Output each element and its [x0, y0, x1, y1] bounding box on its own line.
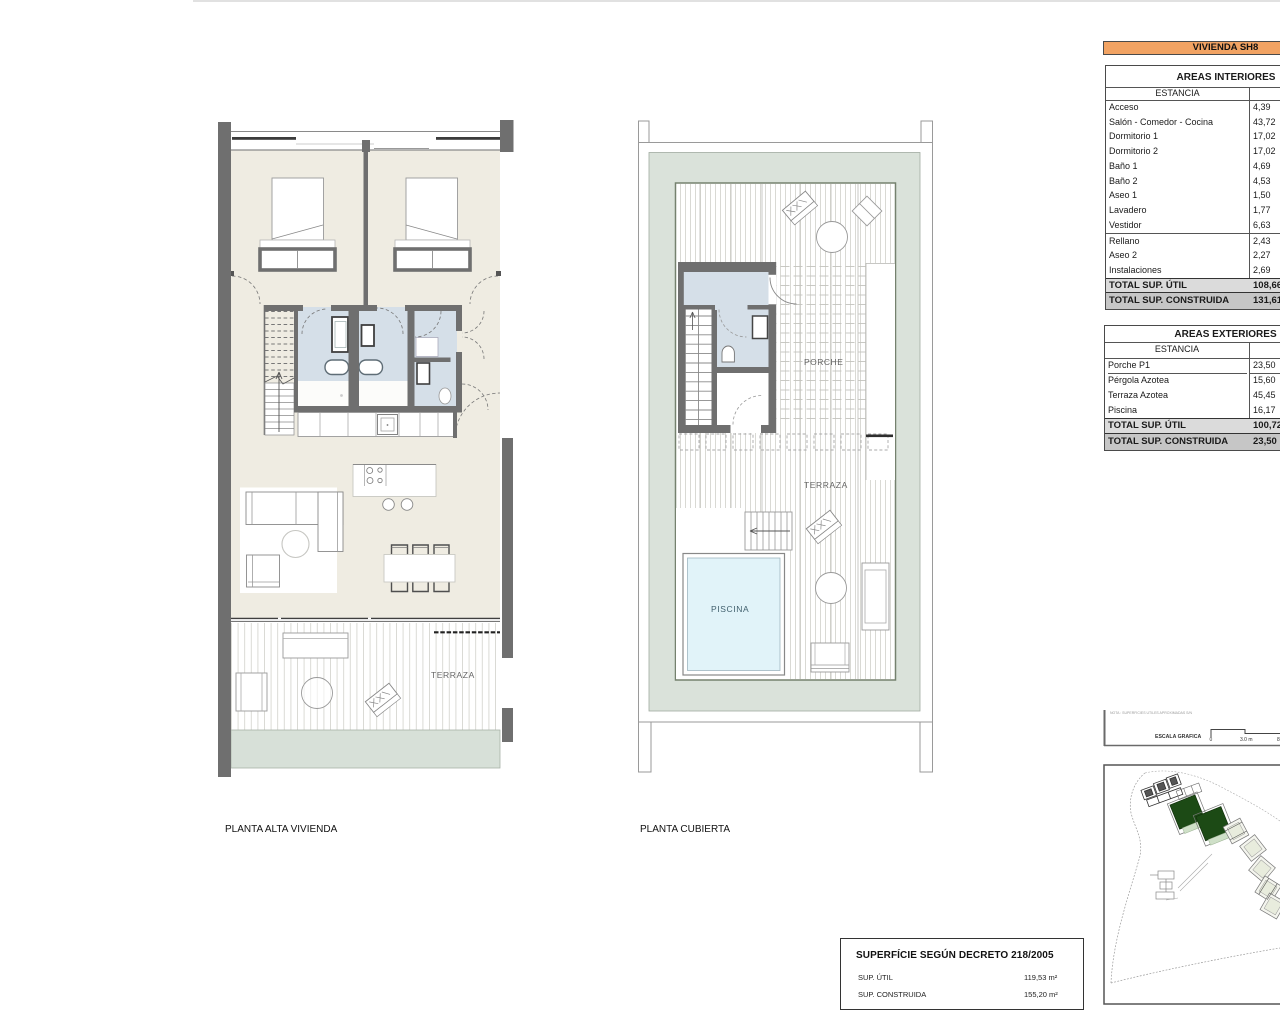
svg-text:PORCHE: PORCHE [804, 357, 843, 367]
svg-text:0: 0 [1210, 737, 1213, 743]
svg-text:3.0 m: 3.0 m [1240, 737, 1253, 743]
svg-text:PLANTA ALTA VIVIENDA: PLANTA ALTA VIVIENDA [225, 824, 338, 835]
svg-text:PISCINA: PISCINA [711, 604, 749, 614]
svg-text:PLANTA CUBIERTA: PLANTA CUBIERTA [640, 824, 730, 835]
svg-text:NOTA : SUPERFICIES UTILES APR: NOTA : SUPERFICIES UTILES APROXIMADAS S/… [1110, 711, 1192, 715]
svg-text:TERRAZA: TERRAZA [431, 670, 475, 680]
svg-text:ESCALA GRAFICA: ESCALA GRAFICA [1155, 734, 1201, 740]
svg-text:TERRAZA: TERRAZA [804, 480, 848, 490]
